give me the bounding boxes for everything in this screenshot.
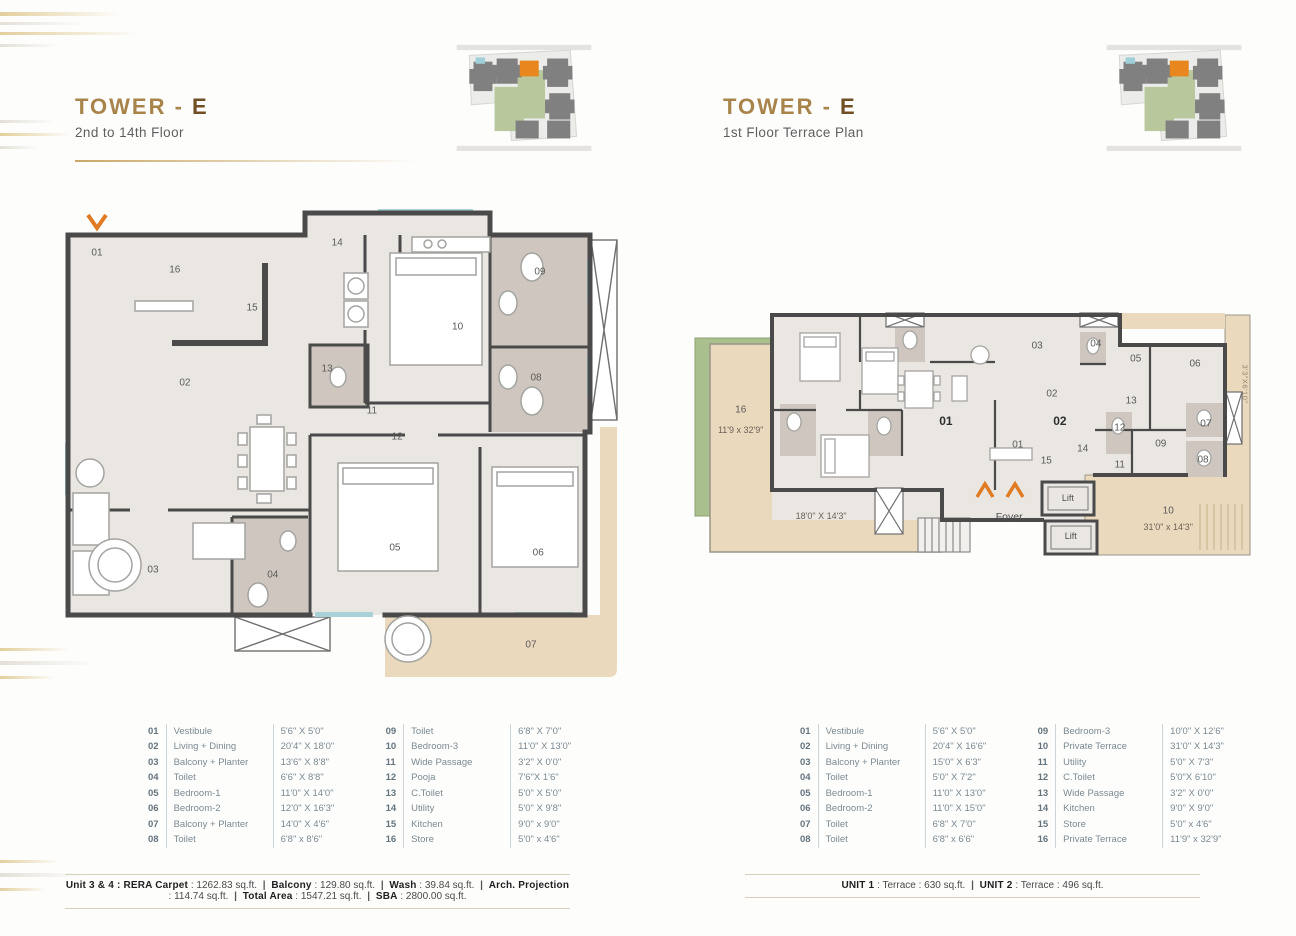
legend-row: 15Store5'0" x 4'6" [1038, 817, 1250, 833]
room-label: 02 [179, 377, 190, 388]
footer-separator: | [375, 880, 389, 891]
right-title-block: TOWER - E 1st Floor Terrace Plan [723, 94, 864, 140]
legend-name: Toilet [818, 771, 925, 787]
legend-name: Bedroom-2 [166, 802, 273, 818]
dimension-label: 18'0" X 14'3" [796, 511, 847, 521]
tower-e-highlight [520, 61, 539, 77]
floor-plan-typical: 01161514100908130211120506030407 [60, 205, 620, 695]
room-label: 16 [169, 265, 180, 276]
edge-streak [0, 44, 60, 47]
legend-dim: 20'4" X 18'0" [273, 740, 360, 756]
legend-name: Toilet [166, 833, 273, 849]
room-label: 14 [332, 238, 343, 249]
legend-no: 15 [1038, 817, 1056, 833]
legend-row: 01Vestibule5'6" X 5'0" [148, 724, 360, 740]
legend-dim: 3'2" X 0'0" [511, 755, 598, 771]
legend-dim: 9'0" X 9'0" [1163, 802, 1250, 818]
room-label: 04 [267, 569, 278, 580]
legend-name: Wide Passage [1056, 786, 1163, 802]
legend-dim: 5'0" X 7'2" [925, 771, 1012, 787]
legend-name: Bedroom-2 [818, 802, 925, 818]
legend-no: 16 [386, 833, 404, 849]
edge-streak [0, 120, 55, 123]
tower-e-highlight [1170, 61, 1189, 77]
room-label: 06 [1189, 359, 1200, 370]
legend-no: 04 [800, 771, 818, 787]
legend-row: 08Toilet6'8" x 8'6" [148, 833, 360, 849]
legend-no: 13 [1038, 786, 1056, 802]
legend-dim: 11'0" X 13'0" [511, 740, 598, 756]
legend-dim: 5'0"X 6'10" [1163, 771, 1250, 787]
room-label: 09 [1155, 439, 1166, 450]
site-pool [1126, 57, 1135, 63]
room-label: 13 [322, 364, 333, 375]
legend-table: 01Vestibule5'6" X 5'0"02Living + Dining2… [148, 724, 360, 848]
legend-row: 10Bedroom-311'0" X 13'0" [386, 740, 598, 756]
title-underline [75, 160, 420, 162]
footer-separator: | [228, 891, 242, 902]
legend-name: Vestibule [818, 724, 925, 740]
legend-row: 03Balcony + Planter15'0" X 6'3" [800, 755, 1012, 771]
edge-streak [0, 676, 55, 679]
room-label: 11 [1115, 460, 1125, 471]
floor-plan-terrace: 1611'9 x 32'9"18'0" X 14'3"0102030405060… [690, 300, 1260, 562]
footer-separator: | [474, 880, 488, 891]
room-label: 01 [1012, 440, 1023, 451]
legend-name: Living + Dining [166, 740, 273, 756]
legend-dim: 6'8" X 7'0" [511, 724, 598, 740]
brochure-page: TOWER - E 2nd to 14th Floor [0, 0, 1296, 936]
legend-dim: 14'0" X 4'6" [273, 817, 360, 833]
edge-streak [0, 146, 40, 149]
legend-row: 09Bedroom-310'0" X 12'6" [1038, 724, 1250, 740]
legend-row: 06Bedroom-212'0" X 16'3" [148, 802, 360, 818]
legend-name: Bedroom-1 [166, 786, 273, 802]
legend-row: 14Kitchen9'0" X 9'0" [1038, 802, 1250, 818]
legend-no: 11 [1038, 755, 1056, 771]
room-labels-layer: 1611'9 x 32'9"18'0" X 14'3"0102030405060… [690, 300, 1260, 562]
room-label: 08 [1197, 454, 1208, 465]
edge-streak [0, 133, 72, 136]
legend-no: 12 [1038, 771, 1056, 787]
legend-name: C.Toilet [404, 786, 511, 802]
edge-streak [0, 860, 60, 863]
legend-no: 03 [148, 755, 166, 771]
footer-label: Unit 3 & 4 : RERA Carpet [66, 880, 188, 891]
legend-name: Living + Dining [818, 740, 925, 756]
footer-separator: | [257, 880, 271, 891]
legend-no: 03 [800, 755, 818, 771]
footer-value: : 2800.00 sq.ft. [398, 891, 467, 902]
edge-streak [0, 12, 120, 16]
legend-row: 14Utility5'0" X 9'8" [386, 802, 598, 818]
footer-label: UNIT 1 [841, 880, 874, 891]
room-label: 05 [1130, 353, 1141, 364]
dimension-label: 31'0" x 14'3" [1144, 522, 1193, 532]
room-label: 07 [525, 640, 536, 651]
title-prefix: TOWER - [75, 94, 192, 119]
legend-row: 11Utility5'0" X 7'3" [1038, 755, 1250, 771]
footer-value: : 129.80 sq.ft. [312, 880, 375, 891]
legend-row: 06Bedroom-211'0" X 15'0" [800, 802, 1012, 818]
footer-value: : Terrace : 496 sq.ft. [1013, 880, 1104, 891]
legend-name: Toilet [404, 724, 511, 740]
legend-dim: 9'0" x 9'0" [511, 817, 598, 833]
area-summary: UNIT 1 : Terrace : 630 sq.ft. | UNIT 2 :… [745, 874, 1200, 898]
legend-row: 02Living + Dining20'4" X 16'6" [800, 740, 1012, 756]
footer-value: : 39.84 sq.ft. [417, 880, 475, 891]
legend-no: 10 [1038, 740, 1056, 756]
room-label: 16 [735, 405, 746, 416]
legend-dim: 20'4" X 16'6" [925, 740, 1012, 756]
legend-dim: 6'6" X 8'8" [273, 771, 360, 787]
legend-name: Balcony + Planter [166, 817, 273, 833]
legend-dim: 6'8" x 6'6" [925, 833, 1012, 849]
legend-row: 08Toilet6'8" x 6'6" [800, 833, 1012, 849]
room-label: 15 [247, 302, 258, 313]
legend-row: 07Balcony + Planter14'0" X 4'6" [148, 817, 360, 833]
legend-no: 05 [800, 786, 818, 802]
legend-row: 13C.Toilet5'0" X 5'0" [386, 786, 598, 802]
legend-row: 10Private Terrace31'0" X 14'3" [1038, 740, 1250, 756]
legend-no: 07 [800, 817, 818, 833]
edge-streak [0, 22, 85, 25]
room-label: 10 [452, 322, 463, 333]
site-map-thumbnail [1100, 28, 1248, 170]
footer-value: : 114.74 sq.ft. [169, 891, 229, 902]
legend-dim: 13'6" X 8'8" [273, 755, 360, 771]
room-label: 11 [367, 405, 377, 416]
footer-value: : 1262.83 sq.ft. [188, 880, 257, 891]
room-legend: 01Vestibule5'6" X 5'0"02Living + Dining2… [148, 724, 597, 848]
legend-no: 11 [386, 755, 404, 771]
legend-row: 09Toilet6'8" X 7'0" [386, 724, 598, 740]
legend-name: Private Terrace [1056, 740, 1163, 756]
legend-dim: 5'0" X 7'3" [1163, 755, 1250, 771]
legend-name: Pooja [404, 771, 511, 787]
room-label: 09 [534, 267, 545, 278]
legend-name: C.Toilet [1056, 771, 1163, 787]
legend-dim: 5'0" X 9'8" [511, 802, 598, 818]
site-map-svg [450, 28, 598, 170]
footer-label: Arch. Projection [489, 880, 569, 891]
legend-dim: 7'6"X 1'6" [511, 771, 598, 787]
room-legend: 01Vestibule5'6" X 5'0"02Living + Dining2… [800, 724, 1249, 848]
legend-no: 09 [1038, 724, 1056, 740]
room-label: 05 [389, 543, 400, 554]
legend-row: 04Toilet6'6" X 8'8" [148, 771, 360, 787]
footer-value: : Terrace : 630 sq.ft. [874, 880, 965, 891]
plan-subtitle: 2nd to 14th Floor [75, 125, 209, 140]
footer-value: : 1547.21 sq.ft. [293, 891, 362, 902]
room-label: 13 [1126, 395, 1137, 406]
legend-dim: 5'0" x 4'6" [1163, 817, 1250, 833]
legend-table: 09Toilet6'8" X 7'0"10Bedroom-311'0" X 13… [386, 724, 598, 848]
footer-separator: | [361, 891, 375, 902]
legend-no: 06 [800, 802, 818, 818]
legend-row: 12C.Toilet5'0"X 6'10" [1038, 771, 1250, 787]
footer-label: UNIT 2 [980, 880, 1013, 891]
legend-no: 13 [386, 786, 404, 802]
legend-name: Vestibule [166, 724, 273, 740]
legend-dim: 15'0" X 6'3" [925, 755, 1012, 771]
legend-name: Toilet [818, 833, 925, 849]
legend-no: 05 [148, 786, 166, 802]
room-label: 12 [1114, 423, 1125, 434]
room-label: 02 [1046, 389, 1057, 400]
edge-streak [0, 888, 46, 891]
room-label: 03 [147, 565, 158, 576]
legend-row: 12Pooja7'6"X 1'6" [386, 771, 598, 787]
legend-name: Wide Passage [404, 755, 511, 771]
dimension-label: 3'3"X6'10" [1240, 364, 1249, 403]
legend-dim: 10'0" X 12'6" [1163, 724, 1250, 740]
legend-no: 02 [148, 740, 166, 756]
legend-row: 03Balcony + Planter13'6" X 8'8" [148, 755, 360, 771]
lift-label: Lift [1062, 493, 1074, 503]
room-label: 14 [1077, 444, 1088, 455]
lift-label: Lift [1065, 531, 1077, 541]
legend-dim: 31'0" X 14'3" [1163, 740, 1250, 756]
legend-name: Toilet [166, 771, 273, 787]
page-title: TOWER - E [723, 94, 864, 120]
legend-row: 05Bedroom-111'0" X 14'0" [148, 786, 360, 802]
legend-row: 02Living + Dining20'4" X 18'0" [148, 740, 360, 756]
legend-no: 01 [800, 724, 818, 740]
legend-row: 15Kitchen9'0" x 9'0" [386, 817, 598, 833]
room-label: 01 [939, 414, 952, 428]
room-label: 10 [1163, 505, 1174, 516]
legend-name: Private Terrace [1056, 833, 1163, 849]
legend-row: 13Wide Passage3'2" X 0'0" [1038, 786, 1250, 802]
footer-separator: | [965, 880, 979, 891]
room-label: 15 [1041, 456, 1052, 467]
legend-dim: 5'6" X 5'0" [273, 724, 360, 740]
legend-table: 09Bedroom-310'0" X 12'6"10Private Terrac… [1038, 724, 1250, 848]
site-map-thumbnail [450, 28, 598, 170]
legend-no: 08 [148, 833, 166, 849]
room-label: 08 [530, 372, 541, 383]
edge-streak [0, 32, 140, 35]
room-label: 12 [392, 431, 403, 442]
legend-name: Bedroom-3 [404, 740, 511, 756]
legend-row: 16Store5'0" x 4'6" [386, 833, 598, 849]
legend-table: 01Vestibule5'6" X 5'0"02Living + Dining2… [800, 724, 1012, 848]
room-labels-layer: 01161514100908130211120506030407 [60, 205, 620, 695]
legend-no: 15 [386, 817, 404, 833]
footer-label: Wash [389, 880, 416, 891]
site-pool [476, 57, 485, 63]
legend-name: Kitchen [1056, 802, 1163, 818]
page-title: TOWER - E [75, 94, 209, 120]
room-label: 06 [533, 547, 544, 558]
legend-name: Balcony + Planter [818, 755, 925, 771]
title-tower: E [192, 94, 209, 119]
room-label: 04 [1090, 339, 1101, 350]
legend-no: 10 [386, 740, 404, 756]
legend-no: 14 [386, 802, 404, 818]
footer-label: Balcony [271, 880, 311, 891]
room-label: Foyer [996, 511, 1023, 523]
room-label: 01 [91, 248, 102, 259]
legend-name: Bedroom-1 [818, 786, 925, 802]
legend-name: Utility [404, 802, 511, 818]
legend-no: 09 [386, 724, 404, 740]
legend-no: 12 [386, 771, 404, 787]
legend-dim: 5'0" X 5'0" [511, 786, 598, 802]
legend-name: Utility [1056, 755, 1163, 771]
legend-name: Toilet [818, 817, 925, 833]
title-prefix: TOWER - [723, 94, 840, 119]
site-map-svg [1100, 28, 1248, 170]
room-label: 02 [1053, 414, 1066, 428]
legend-row: 05Bedroom-111'0" X 13'0" [800, 786, 1012, 802]
legend-no: 02 [800, 740, 818, 756]
legend-no: 07 [148, 817, 166, 833]
legend-name: Bedroom-3 [1056, 724, 1163, 740]
legend-dim: 11'0" X 14'0" [273, 786, 360, 802]
legend-no: 04 [148, 771, 166, 787]
legend-name: Store [1056, 817, 1163, 833]
dimension-label: 11'9 x 32'9" [718, 425, 764, 435]
legend-dim: 11'9" x 32'9" [1163, 833, 1250, 849]
legend-row: 16Private Terrace11'9" x 32'9" [1038, 833, 1250, 849]
legend-dim: 6'8" X 7'0" [925, 817, 1012, 833]
legend-row: 01Vestibule5'6" X 5'0" [800, 724, 1012, 740]
legend-no: 06 [148, 802, 166, 818]
legend-no: 01 [148, 724, 166, 740]
room-label: 03 [1032, 340, 1043, 351]
legend-name: Store [404, 833, 511, 849]
title-tower: E [840, 94, 857, 119]
room-label: 07 [1200, 419, 1211, 430]
legend-no: 14 [1038, 802, 1056, 818]
footer-label: Total Area [243, 891, 293, 902]
legend-no: 16 [1038, 833, 1056, 849]
legend-dim: 11'0" X 13'0" [925, 786, 1012, 802]
legend-no: 08 [800, 833, 818, 849]
legend-row: 11Wide Passage3'2" X 0'0" [386, 755, 598, 771]
legend-name: Kitchen [404, 817, 511, 833]
legend-dim: 3'2" X 0'0" [1163, 786, 1250, 802]
legend-dim: 11'0" X 15'0" [925, 802, 1012, 818]
legend-dim: 5'0" x 4'6" [511, 833, 598, 849]
legend-name: Balcony + Planter [166, 755, 273, 771]
footer-label: SBA [376, 891, 398, 902]
area-summary: Unit 3 & 4 : RERA Carpet : 1262.83 sq.ft… [65, 874, 570, 909]
left-title-block: TOWER - E 2nd to 14th Floor [75, 94, 209, 140]
plan-subtitle: 1st Floor Terrace Plan [723, 125, 864, 140]
legend-dim: 6'8" x 8'6" [273, 833, 360, 849]
legend-dim: 12'0" X 16'3" [273, 802, 360, 818]
legend-row: 07Toilet6'8" X 7'0" [800, 817, 1012, 833]
legend-dim: 5'6" X 5'0" [925, 724, 1012, 740]
legend-row: 04Toilet5'0" X 7'2" [800, 771, 1012, 787]
